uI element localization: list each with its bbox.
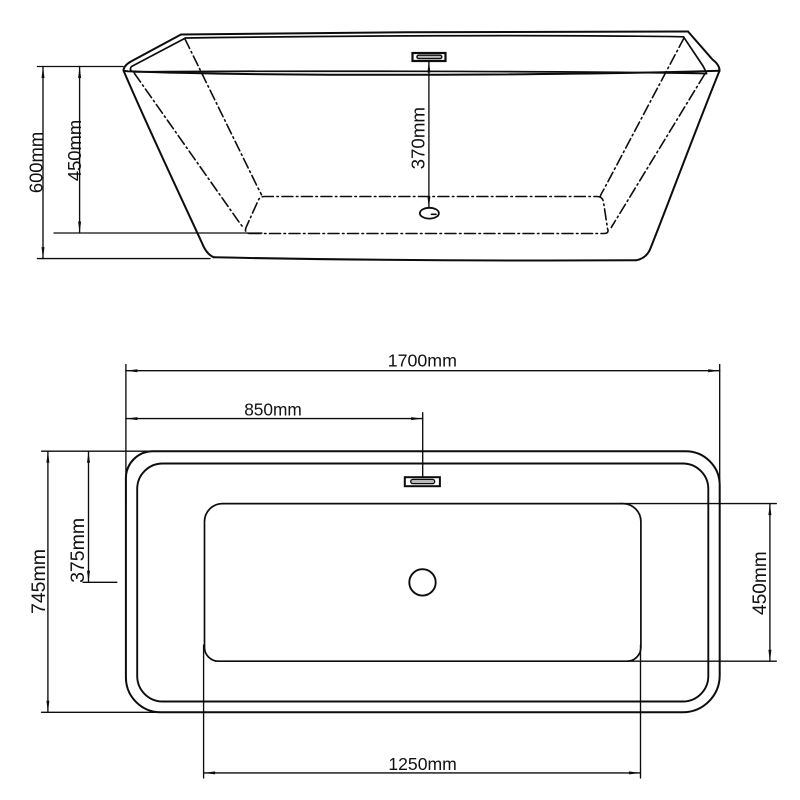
svg-text:375mm: 375mm (67, 518, 89, 583)
svg-text:450mm: 450mm (750, 551, 771, 615)
svg-text:370mm: 370mm (408, 107, 429, 169)
svg-text:745mm: 745mm (28, 549, 50, 614)
svg-text:1250mm: 1250mm (388, 754, 456, 774)
svg-text:1700mm: 1700mm (388, 351, 457, 371)
svg-text:850mm: 850mm (244, 400, 302, 420)
svg-text:600mm: 600mm (26, 132, 47, 193)
svg-text:450mm: 450mm (64, 120, 85, 181)
